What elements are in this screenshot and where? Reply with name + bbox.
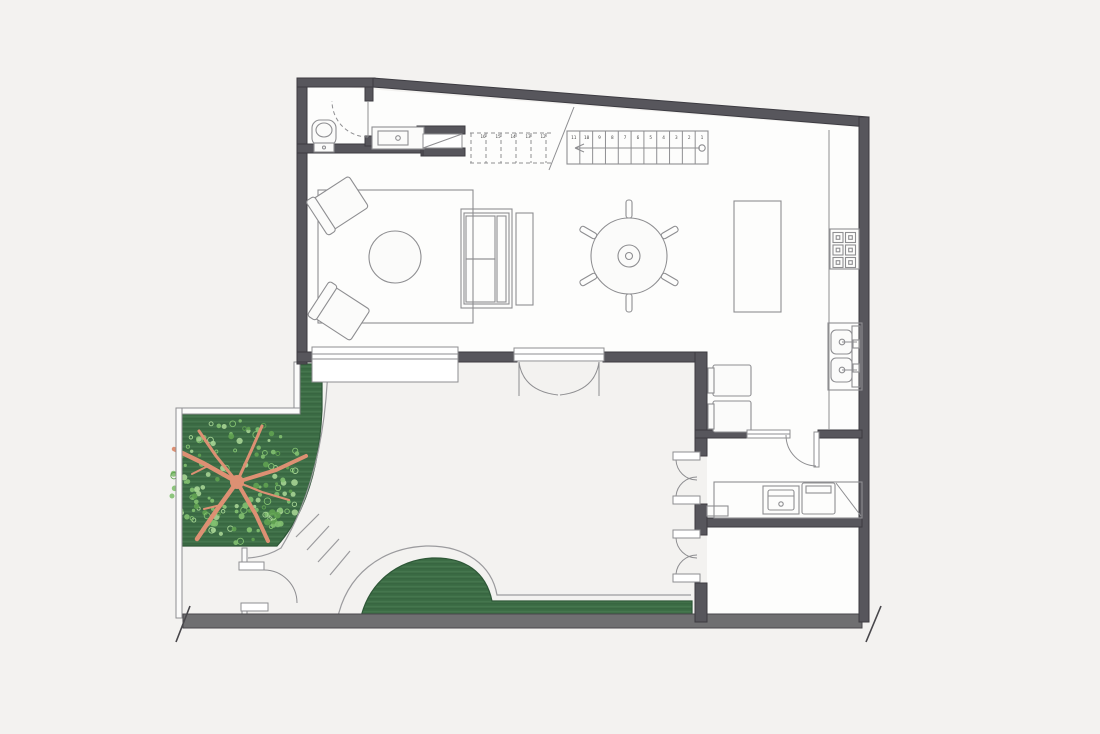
foliage-dot	[190, 450, 193, 453]
stair-step-number: 4	[662, 135, 665, 141]
laundry-window	[747, 430, 790, 438]
foliage-dot	[289, 490, 293, 494]
wc-door-jamb-top	[365, 87, 373, 101]
foliage-dot	[210, 441, 215, 446]
lawn-lower	[360, 558, 692, 621]
coffee-table	[369, 231, 421, 283]
foliage-dot	[292, 509, 298, 515]
foliage-dot	[257, 446, 261, 450]
stair-step-number: 10	[584, 135, 590, 141]
foliage-dot	[211, 528, 216, 533]
foliage-dot	[268, 439, 271, 442]
toilet	[312, 120, 336, 152]
foliage-dot	[190, 488, 195, 493]
foliage-dot	[222, 424, 227, 429]
foliage-dot	[192, 509, 195, 512]
foliage-dot	[235, 504, 239, 508]
foliage-dot	[251, 538, 254, 541]
stair-step-number: 16	[480, 134, 486, 140]
garden-wall-west	[176, 408, 182, 618]
foliage-dot	[184, 464, 187, 467]
foliage-dot	[239, 419, 242, 422]
stair-step-number: 1	[701, 135, 704, 141]
patio-door-lower	[673, 530, 700, 582]
foliage-dot	[194, 500, 199, 505]
foliage-dot	[271, 450, 276, 455]
foliage-dot	[291, 479, 298, 486]
foliage-dot	[263, 483, 268, 488]
foliage-dot	[185, 479, 190, 484]
window-seat	[312, 347, 458, 382]
foliage-dot	[278, 508, 283, 513]
foliage-dot	[272, 474, 277, 479]
foliage-dot	[201, 485, 206, 490]
foliage-dot	[194, 486, 200, 492]
foliage-dot	[170, 494, 175, 499]
garden-wall-north	[176, 408, 300, 414]
foliage-dot	[274, 512, 281, 519]
patio-door-upper	[673, 452, 700, 504]
stair-step-number: 5	[649, 135, 652, 141]
foliage-dot	[219, 532, 223, 536]
foliage-dot	[184, 514, 189, 519]
foliage-dot	[208, 497, 211, 500]
foliage-dot	[206, 472, 211, 477]
garden-steps	[296, 514, 350, 575]
foliage-dot	[279, 435, 282, 438]
foliage-dot	[256, 498, 261, 503]
foliage-dot	[258, 493, 262, 497]
stair-step-number: 7	[624, 135, 627, 141]
french-doors	[514, 348, 604, 396]
entry-gate	[239, 562, 297, 611]
foliage-dot	[232, 527, 237, 532]
foliage-dot	[269, 431, 274, 436]
foliage-dot	[217, 424, 222, 429]
foliage-dot	[239, 513, 245, 519]
lawn-upper	[181, 364, 322, 546]
stair-step-number: 14	[510, 134, 516, 140]
foliage-dot	[247, 427, 251, 431]
foliage-dot	[198, 454, 201, 457]
wall-shelf-bottom	[423, 148, 465, 156]
dining-table	[591, 218, 667, 294]
garden-wall-north-return	[294, 362, 300, 414]
stair-step-number: 6	[637, 135, 640, 141]
understair-shelf	[423, 134, 462, 148]
foliage-dot	[192, 493, 198, 499]
foliage-dot	[254, 452, 258, 456]
wall-living-south-east	[603, 352, 705, 362]
foliage-dot	[264, 519, 271, 526]
stair-step-number: 13	[525, 134, 531, 140]
stair-step-number: 9	[598, 135, 601, 141]
wall-laundry-north-b	[818, 430, 862, 438]
wall-entry-east	[695, 352, 707, 438]
stair-step-number: 11	[571, 135, 577, 141]
foliage-dot	[212, 520, 218, 526]
foliage-dot	[261, 455, 265, 459]
foliage-dot	[194, 504, 199, 509]
stair-step-number: 2	[688, 135, 691, 141]
stair-step-number: 15	[495, 134, 501, 140]
foliage-dot	[228, 433, 234, 439]
foliage-dot	[237, 438, 243, 444]
foliage-dot	[278, 521, 284, 527]
stair-step-number: 8	[611, 135, 614, 141]
foliage-dot	[215, 477, 220, 482]
courtyard	[181, 364, 692, 621]
wall-north-left	[297, 78, 375, 87]
foliage-dot	[295, 451, 300, 456]
stair-step-number: 12	[540, 134, 546, 140]
wall-west-seg3	[695, 583, 707, 622]
floor-plan: 12345678910111213141516	[0, 0, 1100, 734]
foliage-dot	[257, 529, 260, 532]
stair-step-number: 3	[675, 135, 678, 141]
vanity-sink	[372, 127, 424, 149]
foliage-dot	[280, 478, 285, 483]
foliage-dot	[282, 492, 287, 497]
foliage-dot	[210, 499, 214, 503]
foliage-dot	[247, 527, 252, 532]
foliage-dot	[235, 510, 239, 514]
wall-west	[297, 78, 307, 364]
wall-laundry-south	[695, 518, 862, 527]
foliage-dot	[263, 462, 269, 468]
